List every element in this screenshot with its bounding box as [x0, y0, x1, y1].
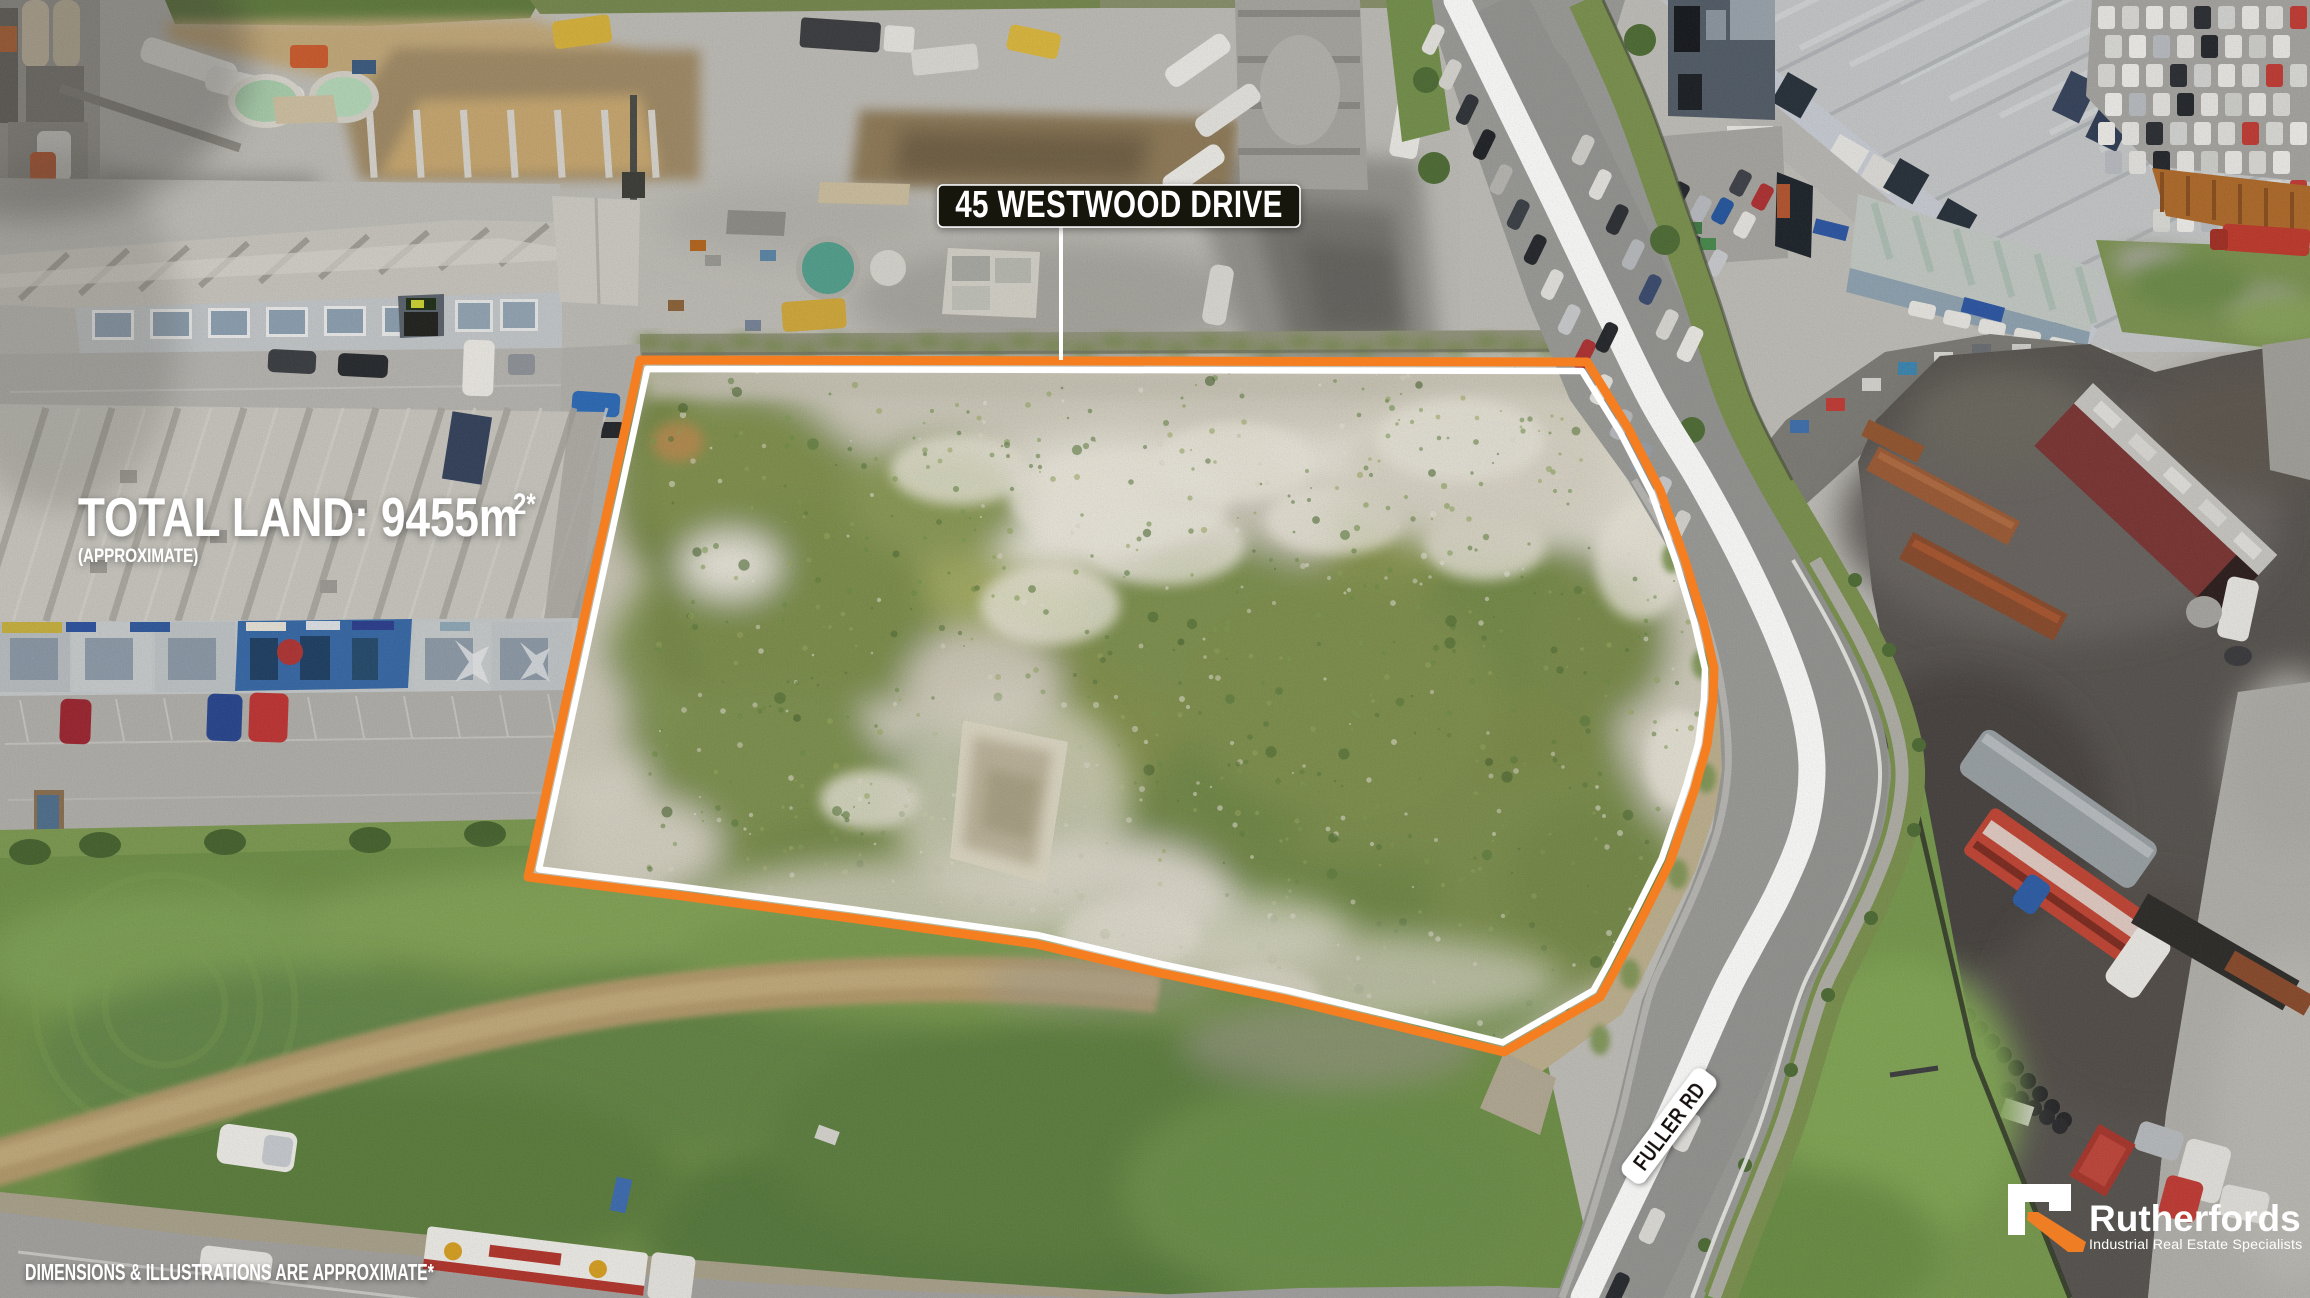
- svg-text:DIMENSIONS & ILLUSTRATIONS ARE: DIMENSIONS & ILLUSTRATIONS ARE APPROXIMA…: [25, 1260, 434, 1286]
- svg-text:Industrial Real Estate Special: Industrial Real Estate Specialists: [2089, 1237, 2302, 1253]
- svg-text:Rutherfords: Rutherfords: [2089, 1198, 2301, 1239]
- svg-text:2*: 2*: [513, 486, 536, 520]
- svg-text:45 WESTWOOD DRIVE: 45 WESTWOOD DRIVE: [955, 184, 1283, 226]
- svg-text:(APPROXIMATE): (APPROXIMATE): [78, 544, 198, 566]
- svg-text:TOTAL LAND: 9455m: TOTAL LAND: 9455m: [78, 486, 518, 548]
